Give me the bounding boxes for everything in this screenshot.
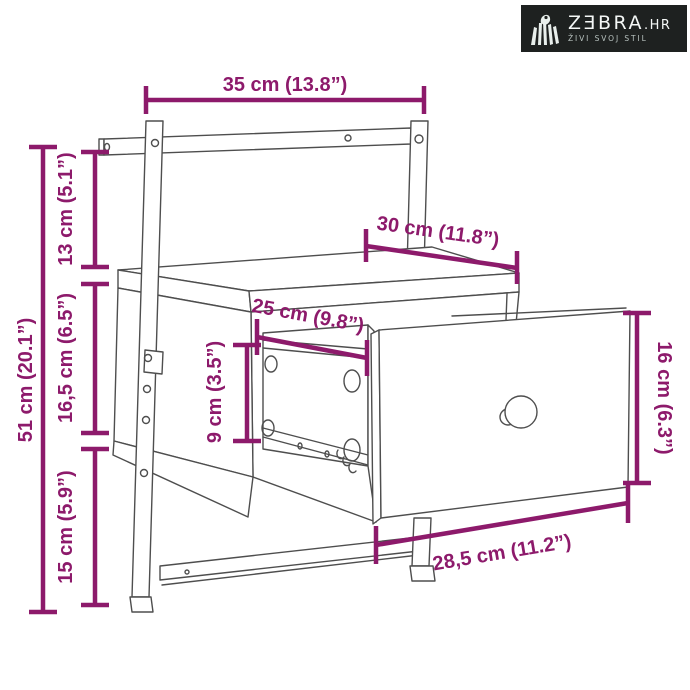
dim-lower-gap-line bbox=[81, 449, 109, 605]
product-dimension-image: 35 cm (13.8”) 51 cm (20.1”) 13 cm (5.1”)… bbox=[0, 0, 690, 690]
right-rail-lower bbox=[410, 518, 435, 581]
dim-top-width-label: 35 cm (13.8”) bbox=[223, 75, 348, 95]
logo-text: ZƎBRA.HR ŽIVI SVOJ STIL bbox=[568, 14, 671, 43]
dim-total-height-label: 51 cm (20.1”) bbox=[16, 318, 36, 443]
logo-wordmark: ZƎBRA.HR bbox=[568, 14, 671, 33]
dim-body-height-line bbox=[81, 284, 109, 433]
dim-drawer-front-height-label: 16 cm (6.3”) bbox=[654, 341, 674, 454]
drawer-knob bbox=[505, 396, 537, 428]
dim-upper-gap-label: 13 cm (5.1”) bbox=[56, 152, 76, 265]
right-wall-rail bbox=[407, 121, 428, 269]
zebra-logo: ZƎBRA.HR ŽIVI SVOJ STIL bbox=[521, 5, 687, 52]
drawer bbox=[368, 308, 630, 524]
dim-body-height-label: 16,5 cm (6.5”) bbox=[56, 293, 76, 423]
dim-opening-height-label: 9 cm (3.5”) bbox=[205, 341, 225, 443]
dim-upper-gap-line bbox=[81, 152, 109, 267]
logo-brand: ZƎBRA bbox=[568, 12, 644, 34]
logo-tld: .HR bbox=[644, 18, 671, 33]
furniture-diagram-svg bbox=[0, 0, 690, 690]
logo-tagline: ŽIVI SVOJ STIL bbox=[568, 35, 671, 43]
zebra-icon bbox=[529, 11, 561, 47]
dim-lower-gap-label: 15 cm (5.9”) bbox=[56, 470, 76, 583]
